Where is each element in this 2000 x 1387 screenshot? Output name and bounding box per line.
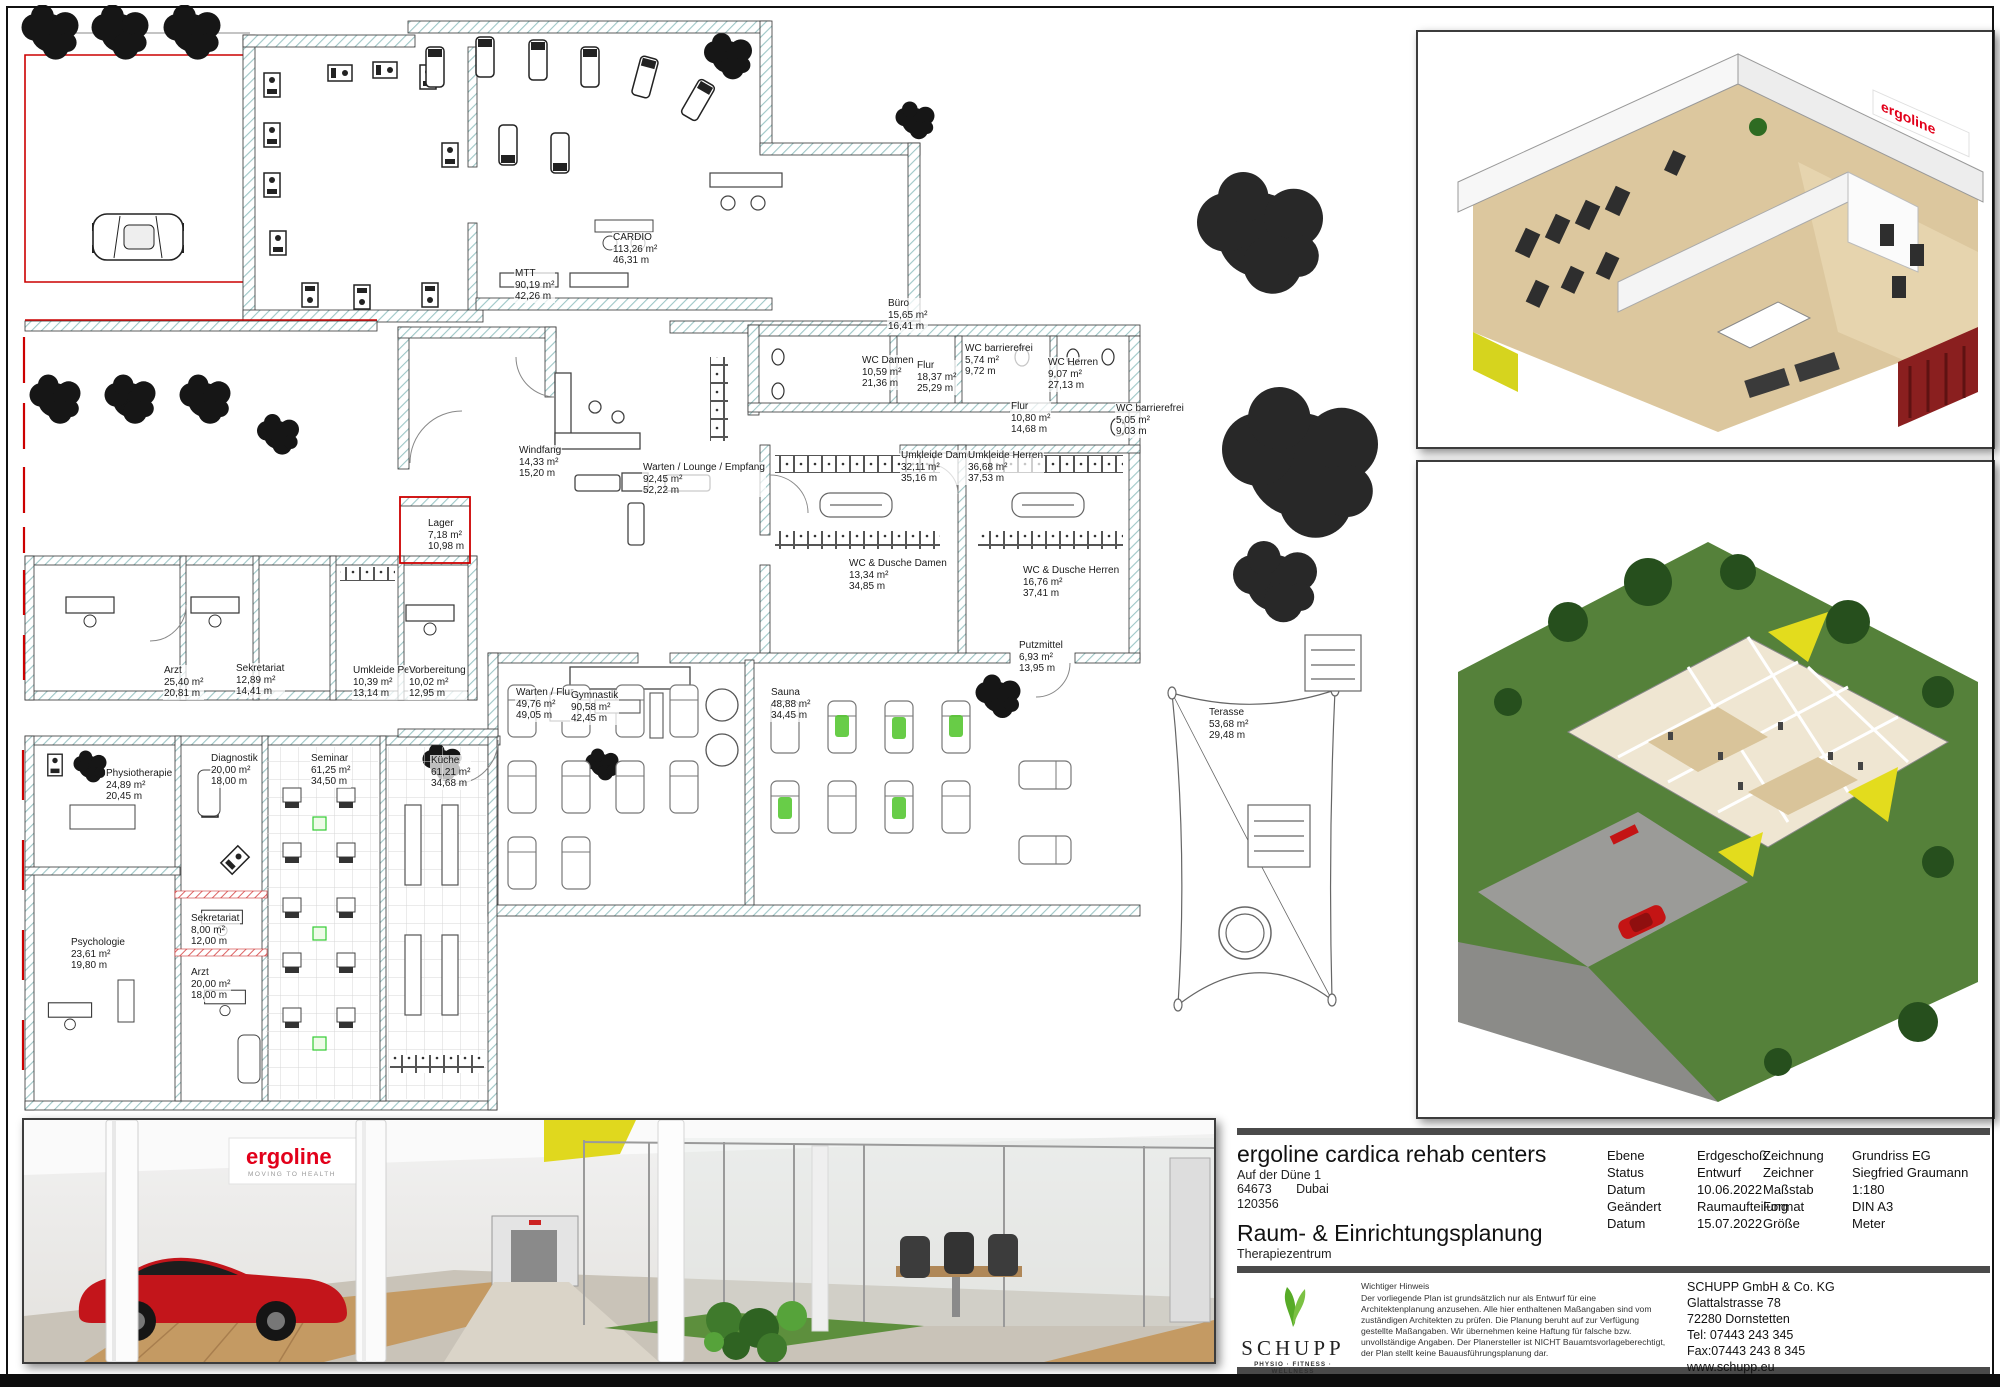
room-label-sauna: Sauna48,88 m²34,45 m [770,687,811,722]
notice: Wichtiger Hinweis Der vorliegende Plan i… [1361,1281,1671,1359]
room-label-putzmittel: Putzmittel6,93 m²13,95 m [1018,640,1064,675]
room-label-warten-lounge-empfang: Warten / Lounge / Empfang92,45 m²52,22 m [642,462,766,497]
room-label-wc-dusche-herren: WC & Dusche Herren16,76 m²37,41 m [1022,565,1120,600]
divider-bar [1237,1367,1990,1374]
room-label-wc-barrierefrei: WC barrierefrei5,05 m²9,03 m [1115,403,1185,438]
glass-wall [684,1138,1214,1326]
render-corridor-perspective: ergoline MOVING TO HEALTH [22,1118,1216,1364]
room-label-wc-herren: WC Herren9,07 m²27,13 m [1047,357,1099,392]
room-label-umkleide-herren: Umkleide Herren36,68 m²37,53 m [967,450,1044,485]
room-label-arzt: Arzt25,40 m²20,81 m [163,665,204,700]
svg-text:ergoline: ergoline [246,1144,332,1169]
room-label-warten-flur: Warten / Flur49,76 m²49,05 m [515,687,574,722]
bottom-black-bar [0,1374,2000,1387]
room-label-mtt: MTT90,19 m²42,26 m [514,268,555,303]
schupp-leaf-icon [1271,1279,1315,1329]
room-label-wc-damen: WC Damen10,59 m²21,36 m [861,355,915,390]
room-label-sekretariat: Sekretariat12,89 m²14,41 m [235,663,285,698]
room-label-windfang: Windfang14,33 m²15,20 m [518,445,562,480]
exit-sign [529,1220,541,1225]
divider-bar [1237,1128,1990,1135]
room-label-wc-dusche-damen: WC & Dusche Damen13,34 m²34,85 m [848,558,948,593]
room-label-psychologie: Psychologie23,61 m²19,80 m [70,937,126,972]
render-interior-isometric: ergoline [1416,30,1995,449]
parked-car-icon [92,214,184,260]
room-label-diagnostik: Diagnostik20,00 m²18,00 m [210,753,259,788]
title-block: ergoline cardica rehab centers Auf der D… [1237,1128,1990,1387]
room-label-büro: Büro15,65 m²16,41 m [887,298,928,333]
room-label-seminar: Seminar61,25 m²34,50 m [310,753,351,788]
corridor-door [511,1230,557,1286]
room-label-wc-barrierefrei: WC barrierefrei5,74 m²9,72 m [964,343,1034,378]
drawing-sheet: MTT90,19 m²42,26 mCARDIO113,26 m²46,31 m… [0,0,2000,1387]
schupp-wordmark: SCHUPP [1237,1336,1349,1361]
kueche-floor [388,747,486,1099]
room-label-vorbereitung: Vorbereitung10,02 m²12,95 m [408,665,467,700]
notice-text: Der vorliegende Plan ist grundsätzlich n… [1361,1293,1671,1359]
room-label-flur: Flur18,37 m²25,29 m [916,360,957,395]
schupp-logo: SCHUPP PHYSIO · FITNESS · WELLNESS [1237,1279,1349,1375]
room-label-terasse: Terasse53,68 m²29,48 m [1208,707,1249,742]
floor-plan: MTT90,19 m²42,26 mCARDIO113,26 m²46,31 m… [10,5,1410,1115]
company-address: SCHUPP GmbH & Co. KG Glattalstrasse 78 7… [1687,1279,1835,1375]
room-label-physiotherapie: Physiotherapie24,89 m²20,45 m [105,768,173,803]
plan-subtitle: Therapiezentrum [1237,1247,1990,1261]
divider-bar [1237,1266,1990,1273]
render-aerial-exterior [1416,460,1995,1119]
plan-fields-left: EbeneErdgeschoß StatusEntwurf Datum10.06… [1607,1147,1788,1232]
floor-plan-drawing [10,5,1410,1115]
notice-title: Wichtiger Hinweis [1361,1281,1671,1292]
room-label-lager: Lager7,18 m²10,98 m [427,518,465,553]
room-label-flur: Flur10,80 m²14,68 m [1010,401,1051,436]
room-label-sekretariat: Sekretariat8,00 m²12,00 m [190,913,240,948]
ergoline-sign: ergoline MOVING TO HEALTH [229,1138,367,1184]
plan-fields-right: ZeichnungGrundriss EG ZeichnerSiegfried … [1763,1147,1968,1232]
far-door [1170,1158,1210,1322]
schupp-tagline: PHYSIO · FITNESS · WELLNESS [1237,1361,1349,1375]
room-label-cardio: CARDIO113,26 m²46,31 m [612,232,658,267]
company-block: SCHUPP PHYSIO · FITNESS · WELLNESS Wicht… [1237,1279,1990,1367]
svg-text:MOVING TO HEALTH: MOVING TO HEALTH [248,1171,336,1178]
plant [1749,118,1767,136]
room-label-arzt: Arzt20,00 m²18,00 m [190,967,231,1002]
room-label-küche: Küche61,21 m²34,68 m [430,755,471,790]
room-label-gymnastik: Gymnastik90,58 m²42,45 m [570,690,619,725]
